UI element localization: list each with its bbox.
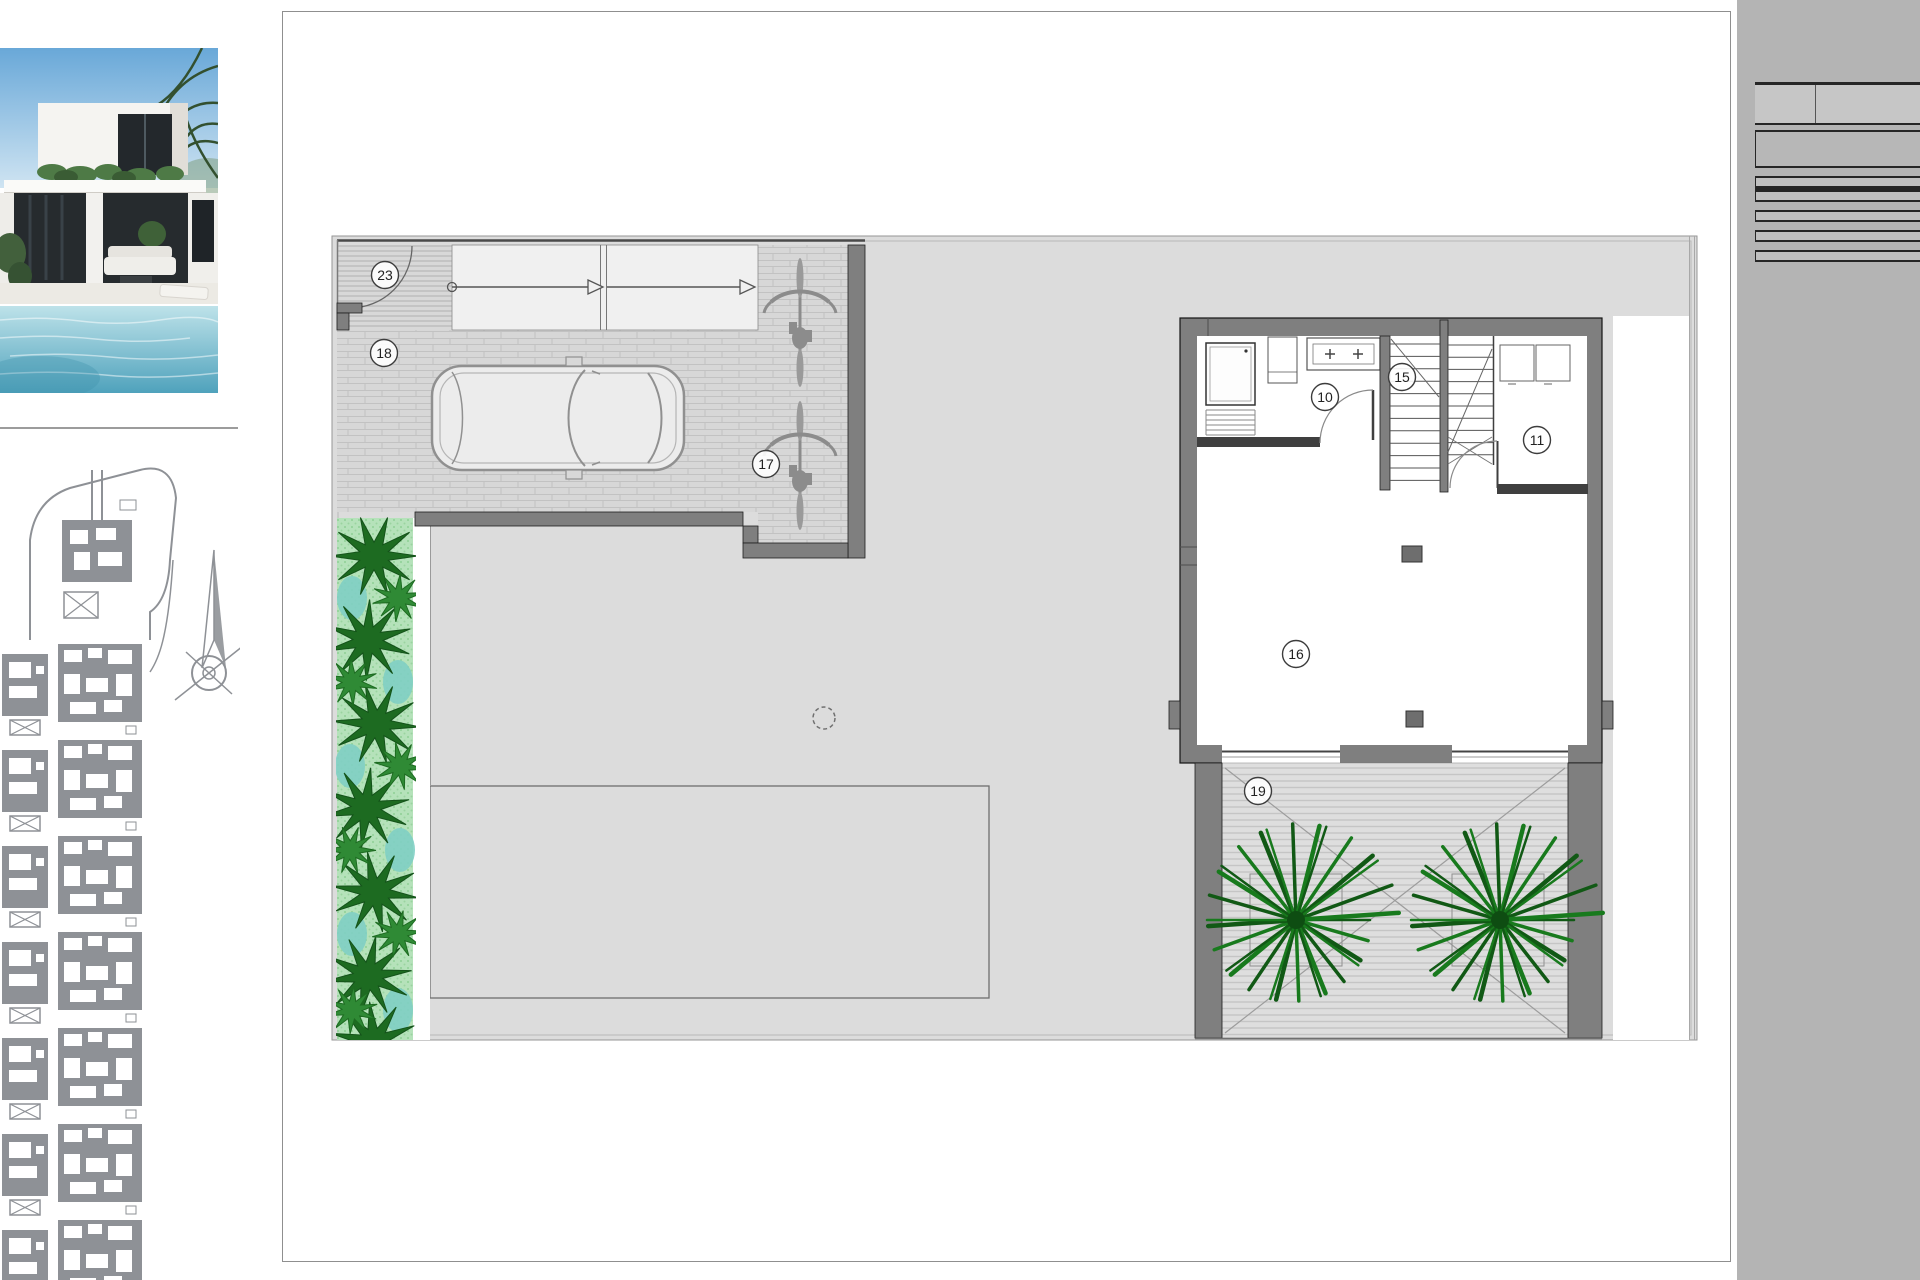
shower-tray — [1206, 343, 1255, 405]
floor-plan: 2318171015111619 — [282, 11, 1733, 1263]
plan-label-text: 16 — [1288, 646, 1304, 662]
plan-label-text: 11 — [1530, 432, 1545, 448]
pool-band — [1755, 210, 1920, 222]
plan-label-text: 19 — [1250, 783, 1266, 799]
partition-wall — [1197, 437, 1320, 447]
north-arrow-icon — [175, 550, 240, 700]
wall — [1568, 763, 1602, 1038]
siteplan-plot-rows — [0, 640, 152, 1280]
villa-upper-shade — [170, 103, 188, 175]
schedule-header-label — [1816, 85, 1821, 123]
villa-photo — [0, 48, 218, 393]
total-band — [1755, 190, 1920, 202]
car-mirror — [566, 357, 582, 366]
side-passage — [1613, 316, 1689, 1040]
villa-window-right — [192, 200, 214, 262]
site-plan — [0, 460, 240, 1280]
lower-footprint-outline — [430, 786, 989, 998]
spacer-band — [1755, 132, 1920, 168]
area-schedule-table — [1755, 82, 1920, 262]
plot-band — [1755, 250, 1920, 262]
hedge-strip — [323, 518, 426, 1083]
garden-band — [1755, 230, 1920, 242]
schedule-panel — [1737, 0, 1920, 1280]
interior-area-band — [1755, 176, 1920, 188]
villa-roof-slab — [4, 180, 206, 193]
toilet — [1268, 337, 1297, 383]
left-column-divider — [0, 427, 238, 429]
plan-label-text: 23 — [377, 267, 393, 283]
pillar — [1402, 546, 1422, 562]
plan-label-text: 10 — [1317, 389, 1333, 405]
wall — [848, 245, 865, 558]
plan-label-text: 18 — [376, 345, 392, 361]
wall — [1195, 763, 1222, 1038]
partition-wall — [1497, 484, 1588, 494]
pillar — [1406, 711, 1423, 727]
villa-column-center — [86, 193, 103, 285]
plan-label-text: 17 — [758, 456, 774, 472]
car-mirror — [566, 470, 582, 479]
schedule-header-number — [1755, 85, 1816, 123]
schedule-header — [1755, 82, 1920, 125]
wall — [415, 512, 743, 526]
car-top-view — [432, 357, 684, 479]
plan-label-text: 15 — [1394, 369, 1410, 385]
vanity-counter — [1307, 338, 1380, 370]
potted-plant — [138, 221, 166, 247]
siteplan-top-house — [62, 500, 136, 618]
